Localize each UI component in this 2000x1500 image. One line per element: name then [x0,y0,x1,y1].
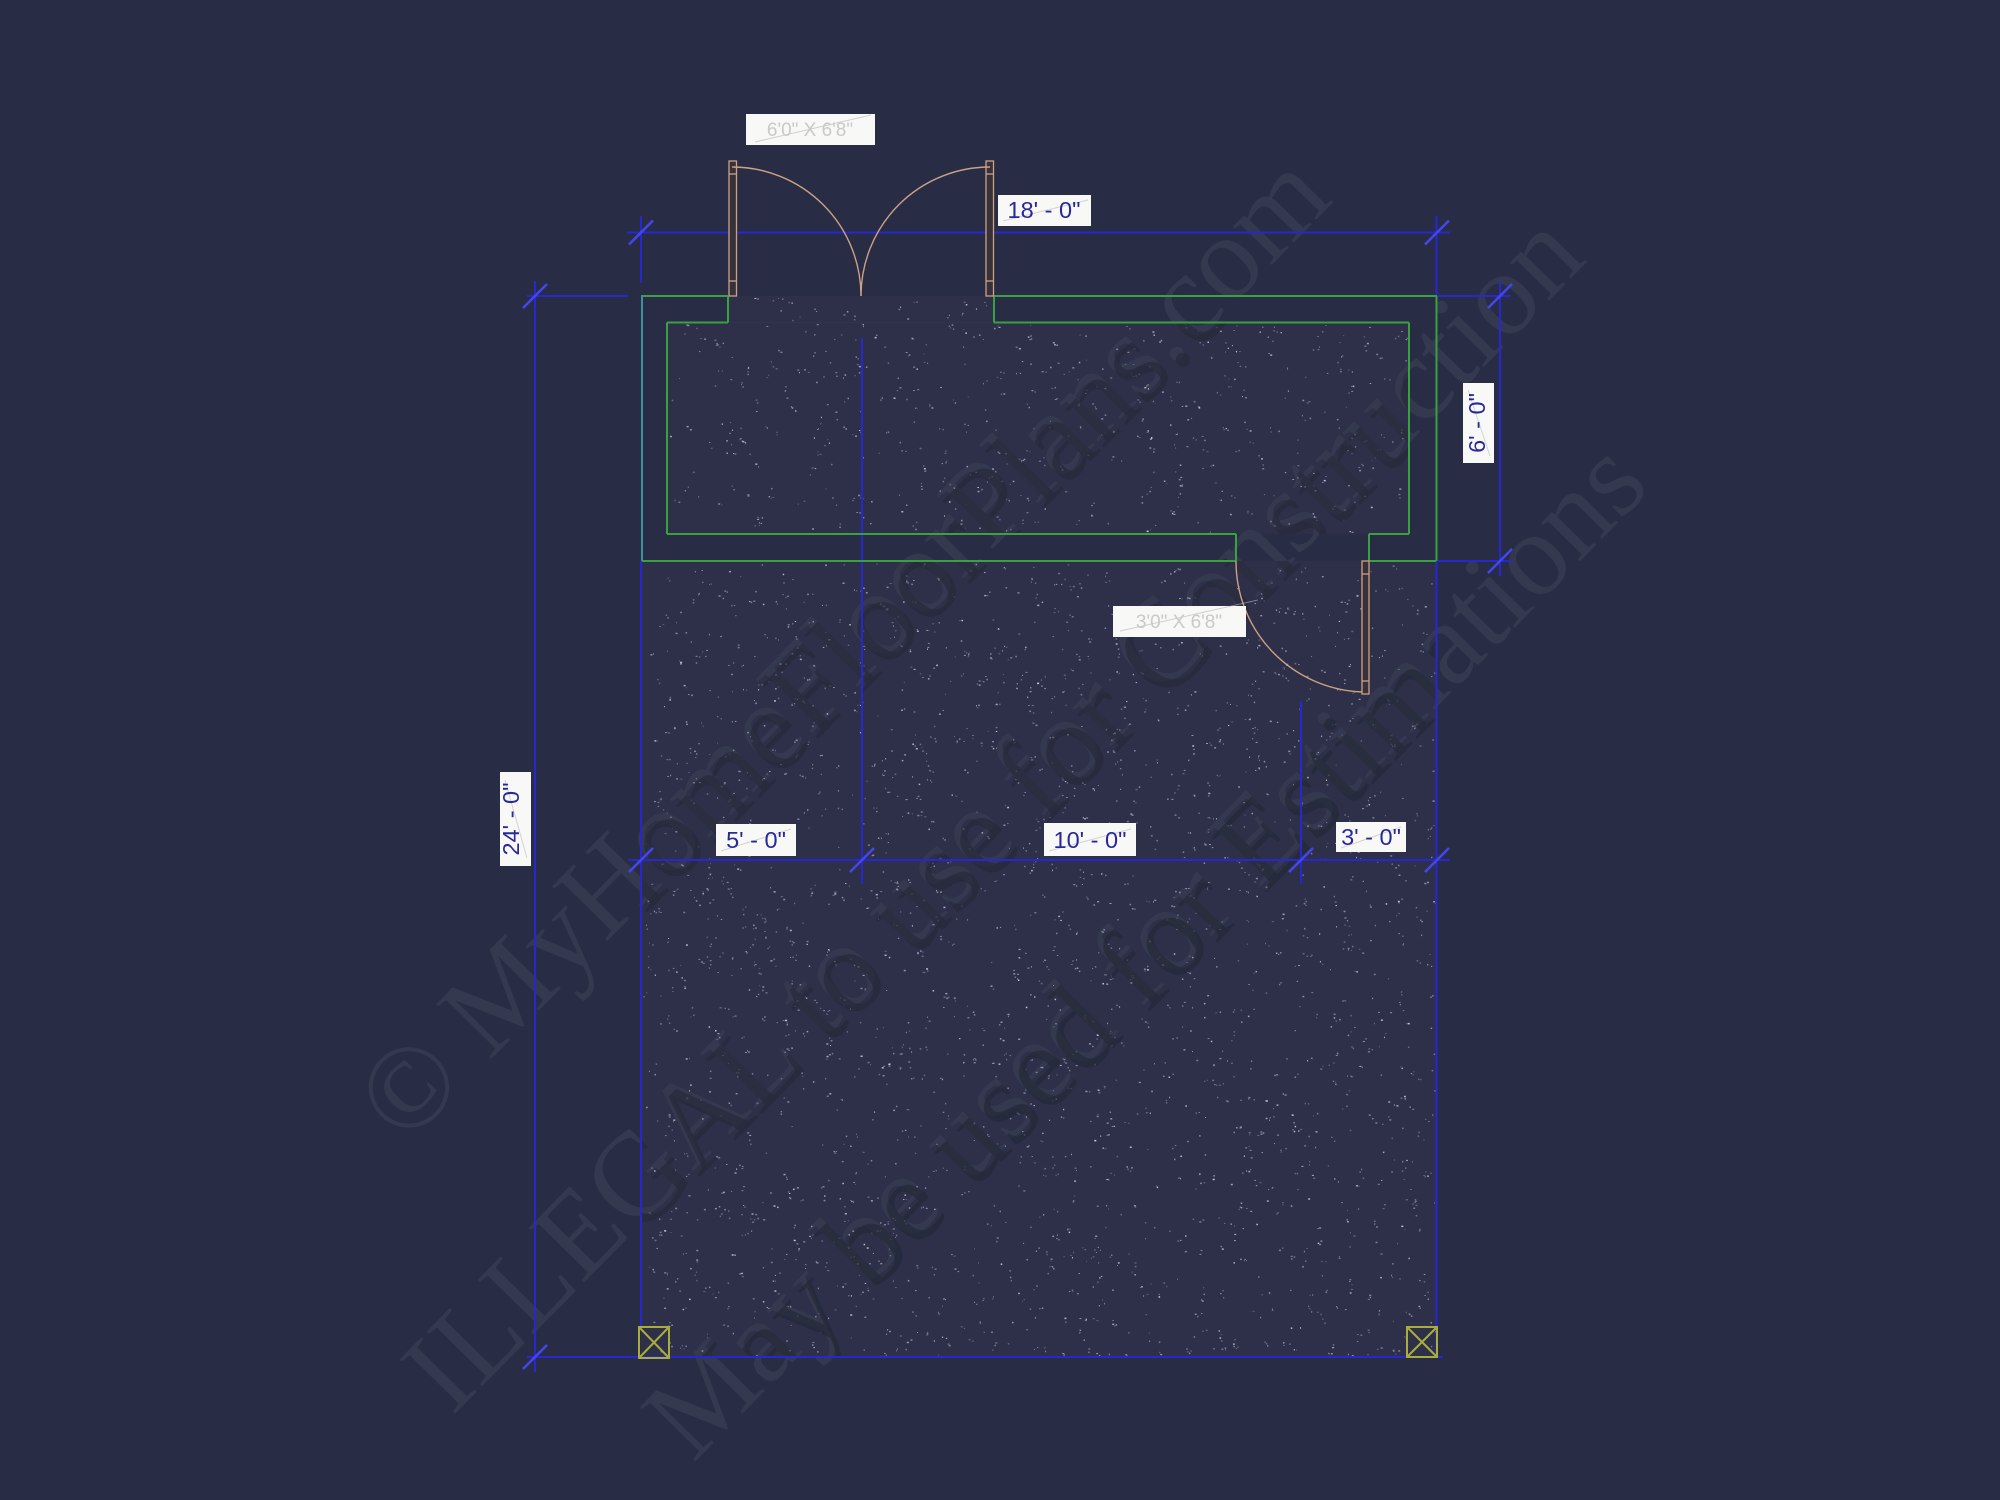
svg-text:18' - 0": 18' - 0" [1008,197,1081,223]
svg-text:5' - 0": 5' - 0" [726,827,786,853]
svg-text:6' - 0": 6' - 0" [1464,393,1490,453]
svg-text:3' - 0": 3' - 0" [1341,824,1401,850]
svg-text:3'0" X 6'8": 3'0" X 6'8" [1136,612,1222,633]
svg-text:24' - 0": 24' - 0" [498,783,524,856]
svg-text:6'0" X 6'8": 6'0" X 6'8" [767,120,853,141]
svg-text:10' - 0": 10' - 0" [1054,827,1127,853]
